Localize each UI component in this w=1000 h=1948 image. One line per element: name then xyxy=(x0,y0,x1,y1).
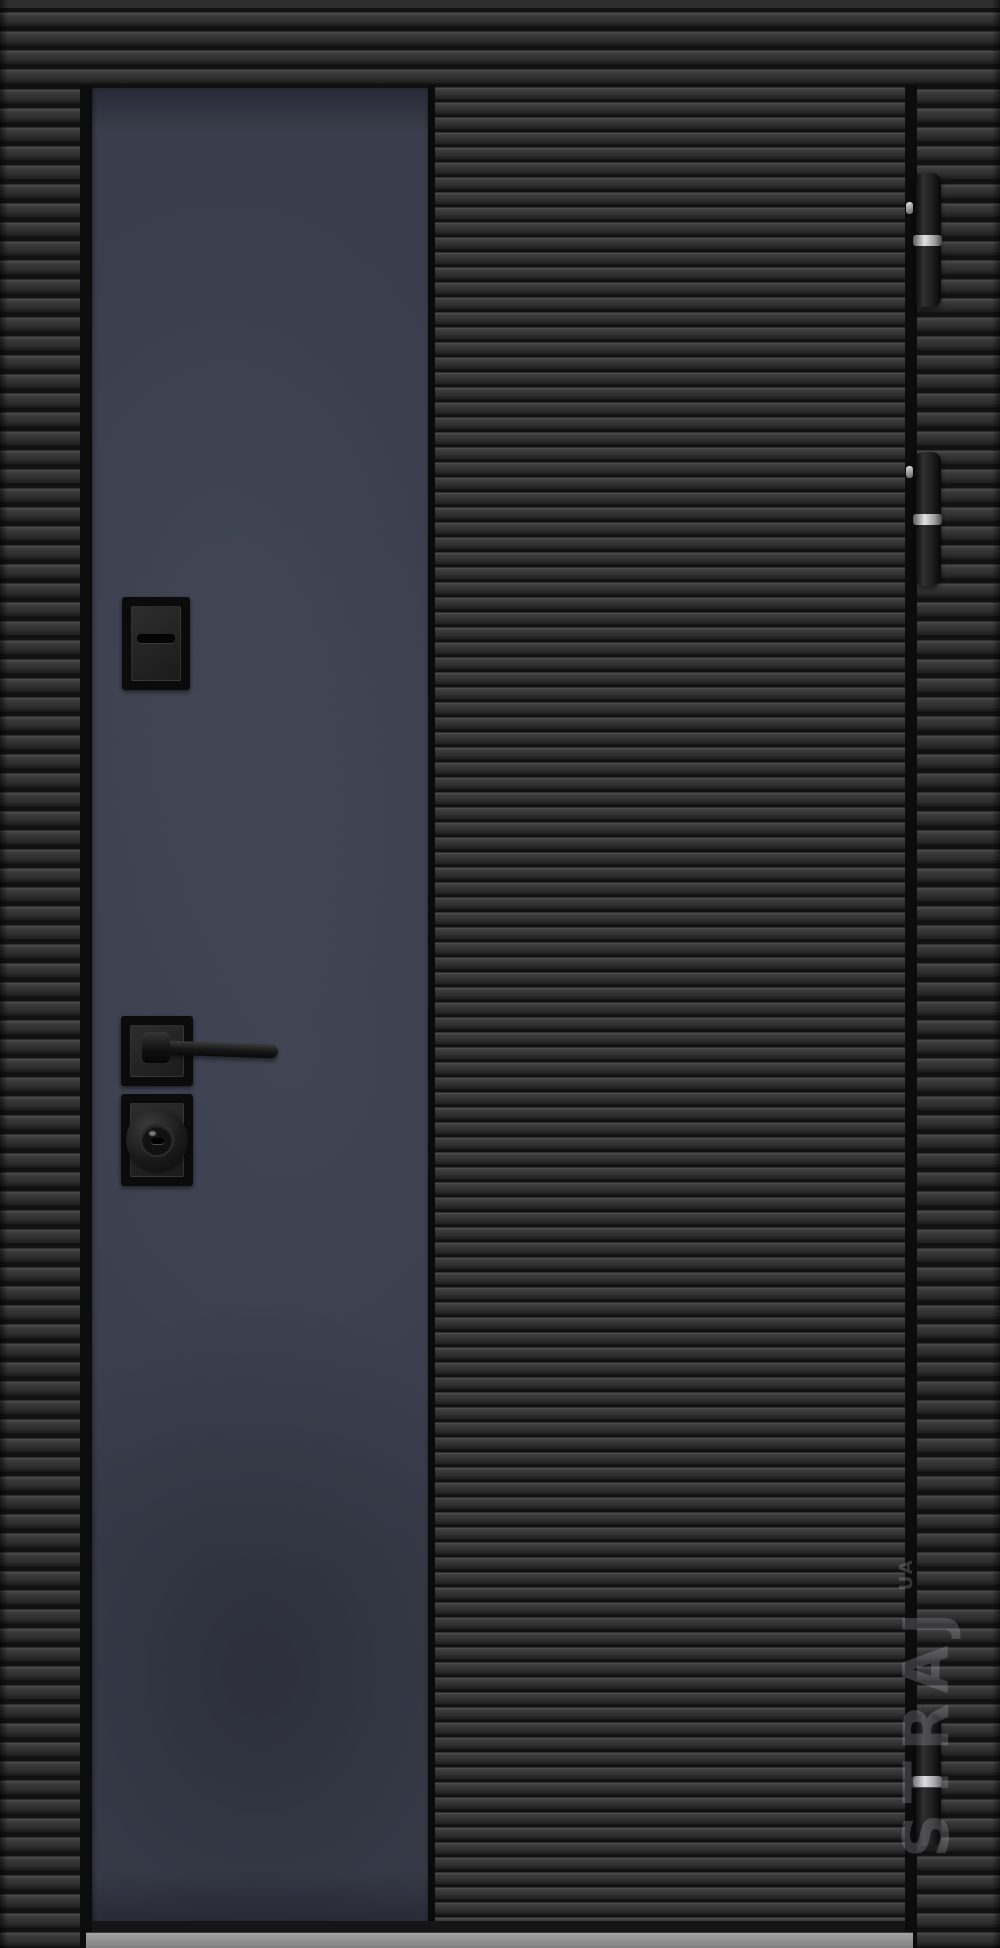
panel-insert xyxy=(92,88,428,1930)
hinge-top xyxy=(914,173,941,307)
door-photo: STRAJ UA xyxy=(0,0,1000,1948)
hinge-pin-icon xyxy=(906,202,913,214)
panel-divider xyxy=(428,85,435,1932)
cylinder-core xyxy=(140,1123,174,1157)
hinge-ring-icon xyxy=(913,235,942,246)
right-jamb xyxy=(917,85,1000,1948)
door-lintel xyxy=(0,8,1000,85)
hinge-bottom xyxy=(914,1714,941,1846)
hinge-ring-icon xyxy=(913,514,942,525)
threshold xyxy=(86,1932,913,1948)
leaf-ribbed-section xyxy=(435,85,905,1932)
hinge-middle xyxy=(914,452,941,586)
hinge-pin-icon xyxy=(906,466,913,478)
right-edge-shade xyxy=(992,0,1000,1948)
frame-top-edge xyxy=(0,0,1000,8)
thumbturn-slot-icon xyxy=(137,634,175,643)
door-handle-neck xyxy=(142,1032,170,1063)
specular-highlight-icon xyxy=(149,1131,156,1136)
keyway-icon xyxy=(151,1138,164,1144)
left-door-gap xyxy=(80,85,92,1948)
thumbturn-lock xyxy=(122,597,190,690)
right-door-gap xyxy=(905,85,917,1948)
thumbturn-plate-inner xyxy=(131,606,181,681)
left-jamb xyxy=(0,85,80,1948)
leaf-bottom-rail xyxy=(92,1921,905,1932)
cylinder-boss xyxy=(126,1109,188,1171)
left-edge-shade xyxy=(0,0,8,1948)
hinge-ring-icon xyxy=(913,1776,942,1787)
